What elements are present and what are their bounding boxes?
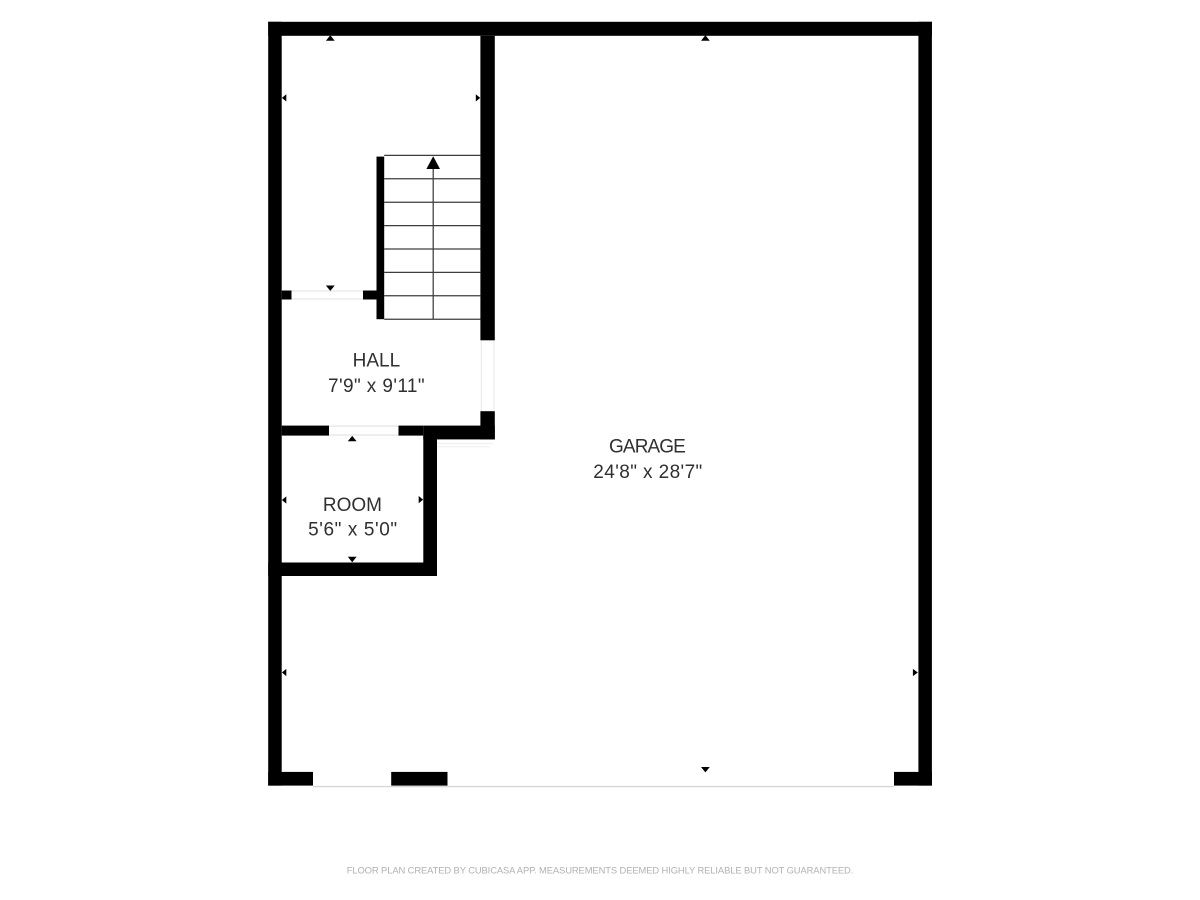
svg-text:ROOM: ROOM	[323, 495, 382, 516]
svg-text:FLOOR PLAN CREATED BY CUBICASA: FLOOR PLAN CREATED BY CUBICASA APP. MEAS…	[347, 865, 853, 876]
svg-text:HALL: HALL	[353, 351, 401, 372]
svg-text:GARAGE: GARAGE	[609, 436, 685, 457]
svg-text:5'6" x 5'0": 5'6" x 5'0"	[308, 520, 398, 541]
svg-text:7'9" x 9'11": 7'9" x 9'11"	[328, 376, 425, 397]
svg-text:24'8" x 28'7": 24'8" x 28'7"	[593, 462, 702, 483]
